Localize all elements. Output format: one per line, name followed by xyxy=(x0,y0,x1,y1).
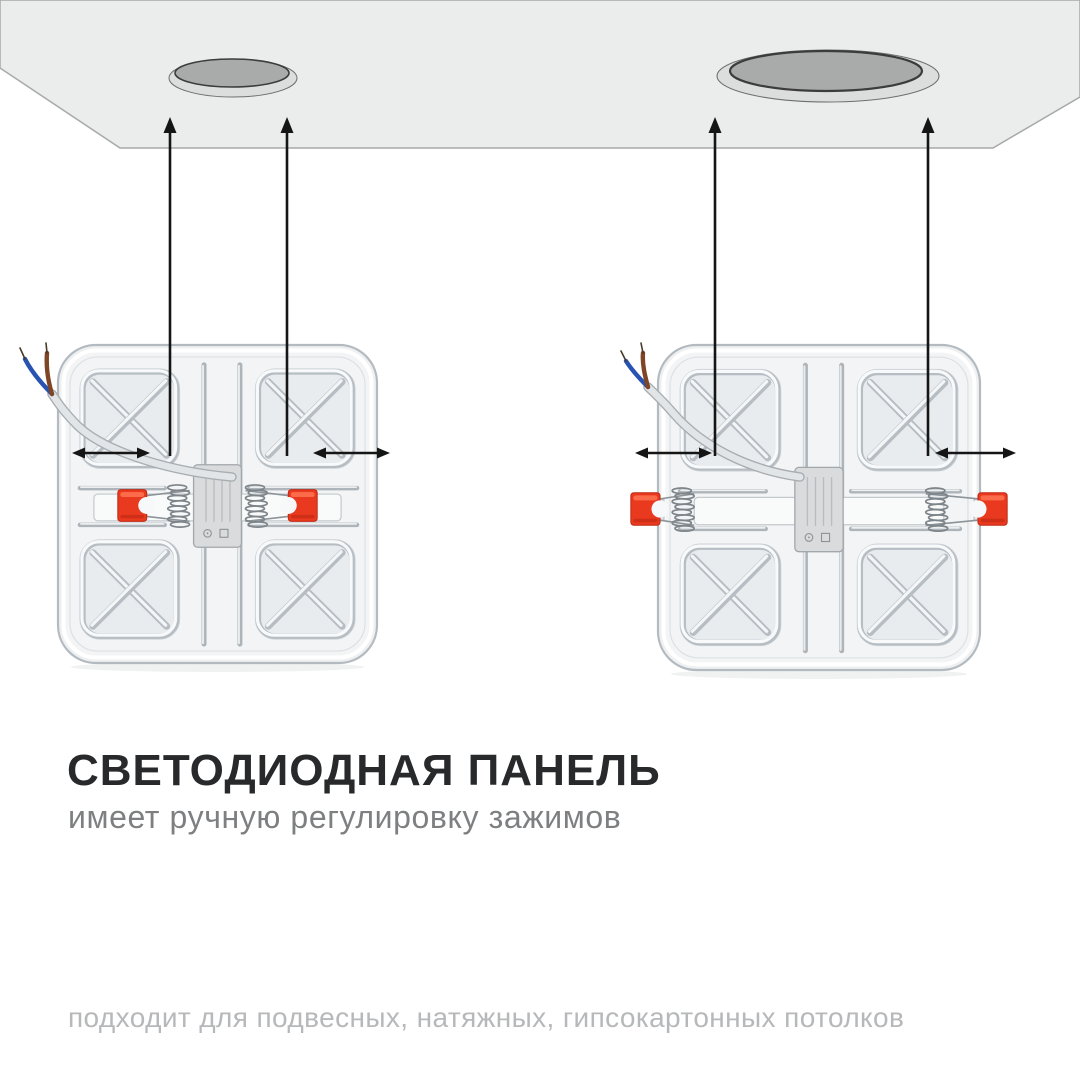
page-title: СВЕТОДИОДНАЯ ПАНЕЛЬ xyxy=(67,747,661,795)
led-panel-left xyxy=(58,345,377,663)
footer-note: подходит для подвесных, натяжных, гипсок… xyxy=(68,1003,904,1034)
large-round-cutout xyxy=(717,50,939,102)
page-subtitle: имеет ручную регулировку зажимов xyxy=(68,800,621,835)
installation-diagram xyxy=(0,0,1080,740)
ceiling xyxy=(0,0,1080,148)
small-round-cutout xyxy=(169,59,297,97)
product-card: СВЕТОДИОДНАЯ ПАНЕЛЬ имеет ручную регулир… xyxy=(0,0,1080,1080)
led-panel-right xyxy=(631,345,1007,670)
